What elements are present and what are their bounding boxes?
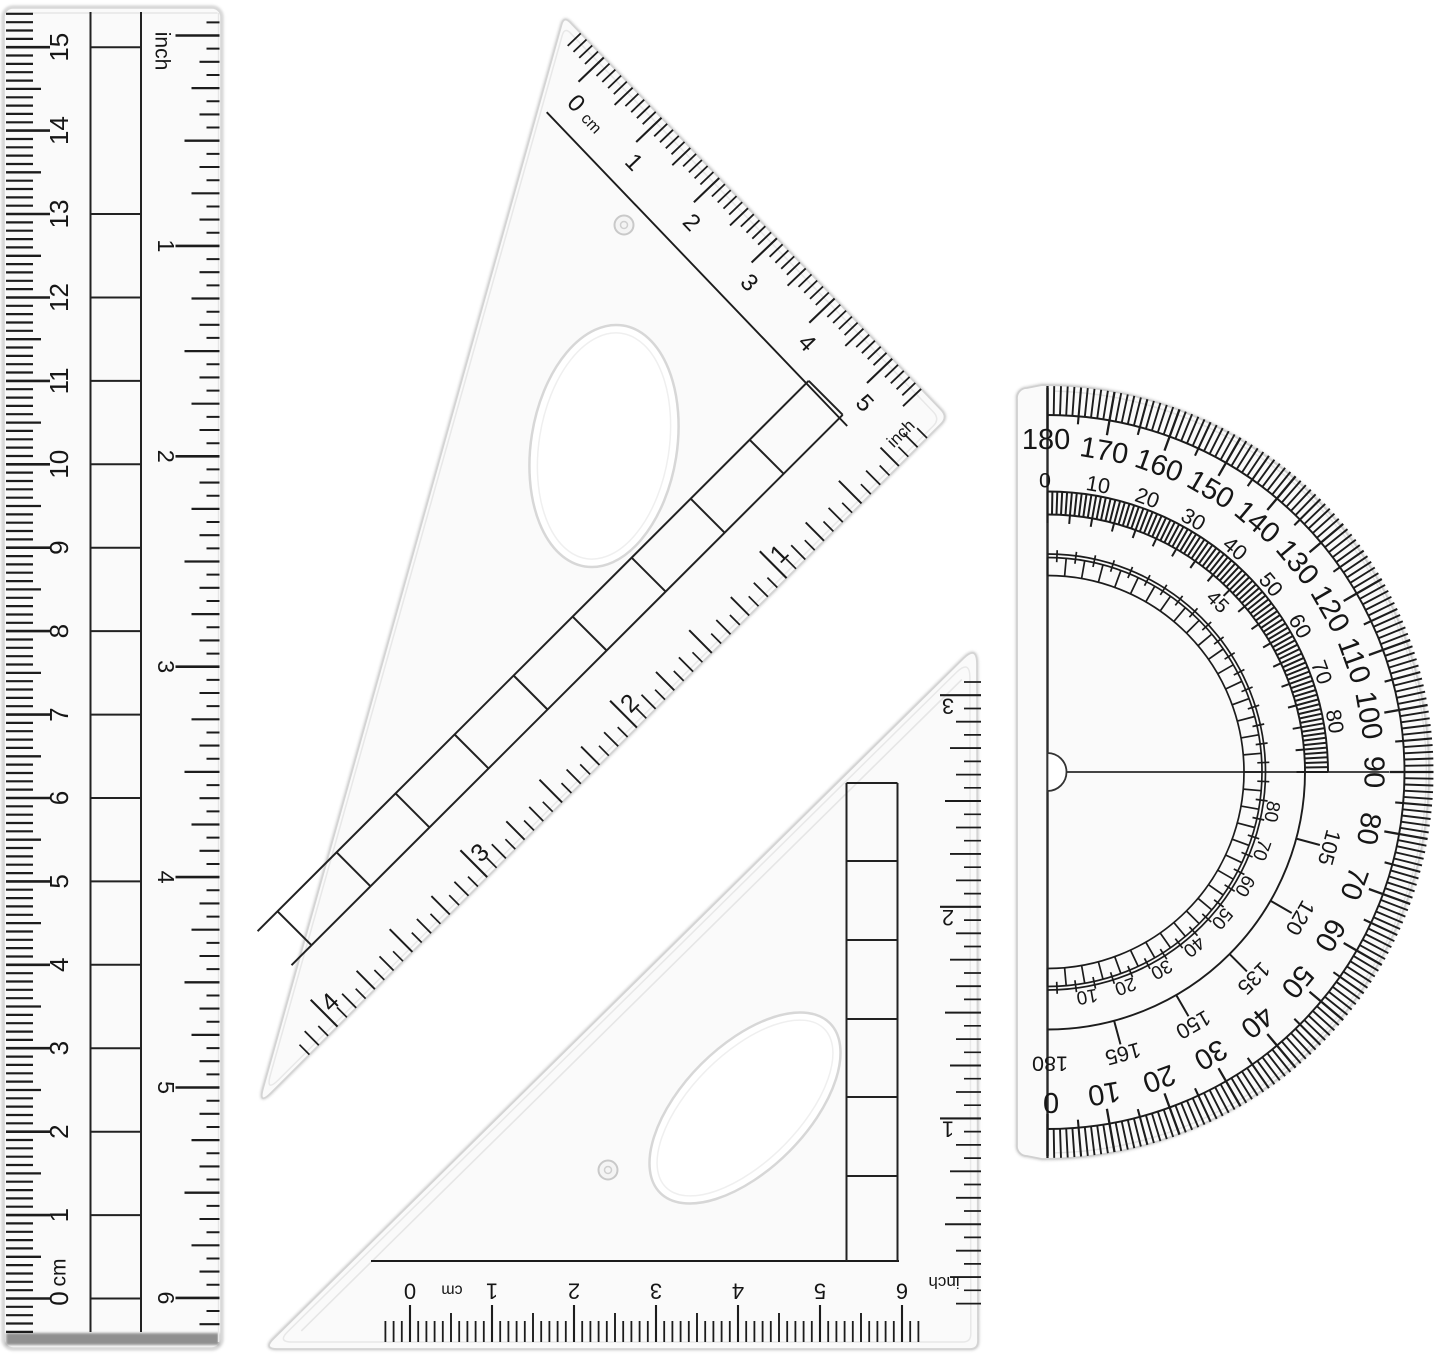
- svg-text:10: 10: [44, 450, 74, 479]
- svg-text:80: 80: [1321, 708, 1349, 736]
- svg-text:5: 5: [814, 1278, 826, 1303]
- svg-text:inch: inch: [928, 1273, 959, 1292]
- svg-text:inch: inch: [151, 32, 174, 71]
- svg-text:10: 10: [1085, 1074, 1122, 1111]
- svg-text:14: 14: [44, 116, 74, 145]
- svg-text:4: 4: [732, 1278, 744, 1303]
- svg-text:6: 6: [44, 791, 74, 805]
- svg-text:3: 3: [942, 694, 954, 719]
- svg-text:8: 8: [44, 624, 74, 638]
- svg-text:0: 0: [44, 1291, 74, 1305]
- svg-text:180: 180: [1022, 424, 1070, 456]
- svg-text:9: 9: [44, 540, 74, 554]
- svg-text:3: 3: [153, 660, 179, 673]
- svg-text:10: 10: [1075, 984, 1099, 1008]
- svg-text:5: 5: [153, 1081, 179, 1094]
- svg-text:1: 1: [942, 1117, 954, 1142]
- svg-text:2: 2: [568, 1278, 580, 1303]
- svg-text:3: 3: [44, 1041, 74, 1055]
- svg-text:cm: cm: [47, 1259, 70, 1287]
- svg-text:1: 1: [44, 1208, 74, 1222]
- svg-text:12: 12: [44, 283, 74, 312]
- svg-text:7: 7: [44, 707, 74, 721]
- svg-text:0: 0: [1039, 469, 1051, 493]
- svg-text:2: 2: [44, 1124, 74, 1138]
- svg-text:4: 4: [44, 958, 74, 972]
- svg-text:2: 2: [153, 450, 179, 463]
- svg-text:10: 10: [1084, 471, 1112, 499]
- svg-text:80: 80: [1259, 799, 1283, 823]
- svg-text:90: 90: [1357, 756, 1389, 788]
- svg-text:1: 1: [486, 1278, 498, 1303]
- svg-text:6: 6: [896, 1278, 908, 1303]
- svg-text:3: 3: [650, 1278, 662, 1303]
- svg-text:5: 5: [44, 874, 74, 888]
- svg-text:4: 4: [153, 871, 179, 884]
- svg-text:0: 0: [1043, 1086, 1059, 1118]
- svg-text:1: 1: [153, 239, 179, 252]
- svg-text:180: 180: [1032, 1051, 1068, 1075]
- svg-text:6: 6: [153, 1291, 179, 1304]
- svg-text:11: 11: [44, 367, 74, 394]
- svg-text:15: 15: [44, 33, 74, 62]
- svg-text:13: 13: [44, 200, 74, 229]
- svg-text:0: 0: [404, 1278, 416, 1303]
- svg-text:cm: cm: [441, 1281, 462, 1298]
- svg-text:2: 2: [942, 905, 954, 930]
- svg-text:80: 80: [1350, 810, 1387, 847]
